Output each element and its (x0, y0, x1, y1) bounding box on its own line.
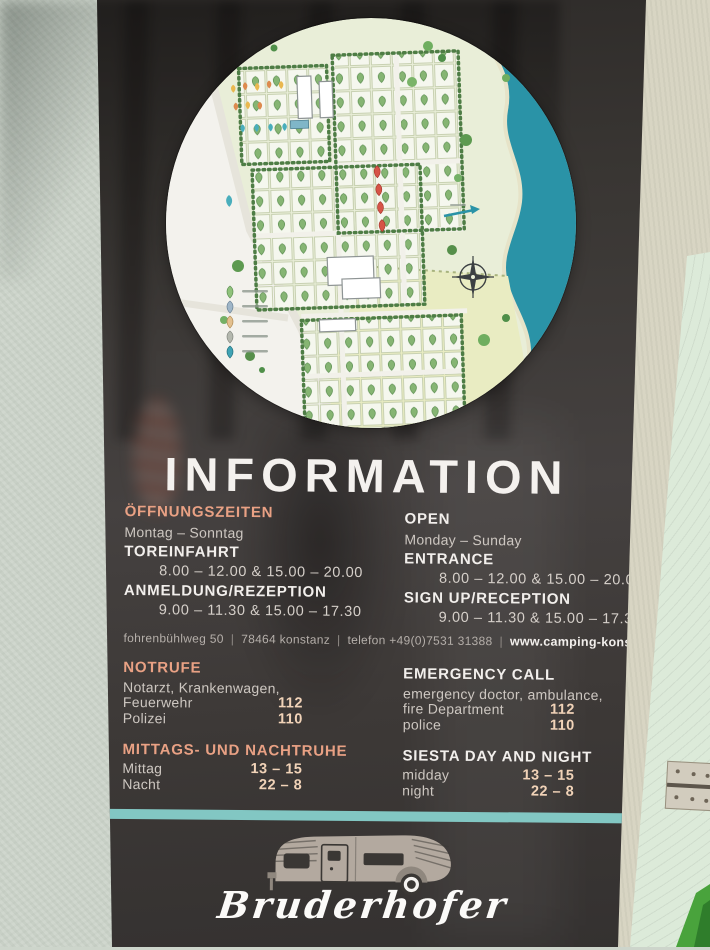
quiet-heading-de: MITTAGS- UND NACHTRUHE (122, 741, 347, 760)
hinge-screw (674, 795, 678, 799)
emergency-row-value: 110 (550, 718, 575, 734)
brand-name: Bruderhofer (90, 883, 636, 927)
hours-heading-en: OPEN (405, 510, 451, 527)
emergency-row-value: 110 (278, 711, 303, 727)
quiet-row-value: 22 – 8 (531, 784, 574, 800)
hours-heading-de: ÖFFNUNGSZEITEN (125, 503, 274, 521)
quiet-row: midday 13 – 15 (402, 766, 574, 784)
emergency-row-label: Feuerwehr (123, 694, 193, 711)
emergency-row: Feuerwehr 112 (123, 694, 303, 712)
caravan-hitch (267, 872, 276, 878)
quiet-row-label: Mittag (122, 760, 162, 776)
hinge-screw (705, 774, 709, 778)
caravan-door-window (328, 851, 341, 861)
brand-logo: Bruderhofer (93, 819, 634, 950)
caravan-front-window (284, 853, 310, 868)
hinge-icon (665, 761, 710, 811)
emergency-row: police 110 (403, 716, 575, 734)
quiet-row-value: 13 – 15 (522, 767, 574, 783)
quiet-row-label: night (402, 782, 434, 798)
reception-label-de: ANMELDUNG/REZEPTION (124, 582, 327, 601)
emergency-heading-de: NOTRUFE (123, 659, 201, 677)
quiet-row: night 22 – 8 (402, 782, 574, 800)
reception-times-en: 9.00 – 11.30 & 15.00 – 17.30 (439, 610, 642, 628)
hinge-screw (676, 769, 680, 773)
quiet-row: Nacht 22 – 8 (122, 776, 302, 794)
gate-times-en: 8.00 – 12.00 & 15.00 – 20.00 (439, 571, 643, 589)
emergency-row: fire Department 112 (403, 700, 575, 718)
emergency-row-value: 112 (550, 702, 575, 718)
quiet-heading-en: SIESTA DAY AND NIGHT (402, 747, 592, 766)
quiet-row-label: midday (402, 766, 449, 782)
address-divider: | (499, 634, 503, 648)
hinge-screw (704, 799, 708, 803)
quiet-row-value: 22 – 8 (259, 777, 302, 793)
emergency-heading-en: EMERGENCY CALL (403, 665, 555, 683)
gate-times-de: 8.00 – 12.00 & 15.00 – 20.00 (159, 563, 363, 581)
reception-times-de: 9.00 – 11.30 & 15.00 – 17.30 (159, 602, 362, 620)
address-city: 78464 konstanz (241, 632, 330, 647)
gate-label-de: TOREINFAHRT (124, 543, 239, 561)
quiet-row: Mittag 13 – 15 (122, 760, 302, 778)
emergency-row-value: 112 (278, 695, 303, 711)
emergency-row-label: fire Department (403, 700, 504, 717)
quiet-row-value: 13 – 15 (250, 761, 302, 777)
caravan-side-window (364, 853, 404, 865)
hours-days-en: Monday – Sunday (404, 531, 521, 548)
emergency-row-label: police (403, 716, 442, 732)
emergency-row: Polizei 110 (123, 710, 303, 728)
quiet-row-label: Nacht (122, 776, 160, 792)
address-divider: | (231, 632, 235, 646)
emergency-row-label: Polizei (123, 710, 166, 726)
hinge-screw (690, 797, 694, 801)
address-divider: | (337, 633, 341, 647)
wall-shadow (0, 0, 110, 280)
address-phone: telefon +49(0)7531 31388 (347, 633, 492, 648)
hinge-pin (667, 783, 710, 789)
page-title: INFORMATION (97, 446, 637, 506)
hinge-screw (692, 772, 696, 776)
address-row: fohrenbühlweg 50|78464 konstanz|telefon … (123, 631, 613, 649)
hours-days-de: Montag – Sonntag (124, 524, 243, 541)
reception-label-en: SIGN UP/RECEPTION (404, 589, 571, 607)
gate-label-en: ENTRANCE (404, 550, 494, 568)
address-street: fohrenbühlweg 50 (123, 631, 223, 646)
